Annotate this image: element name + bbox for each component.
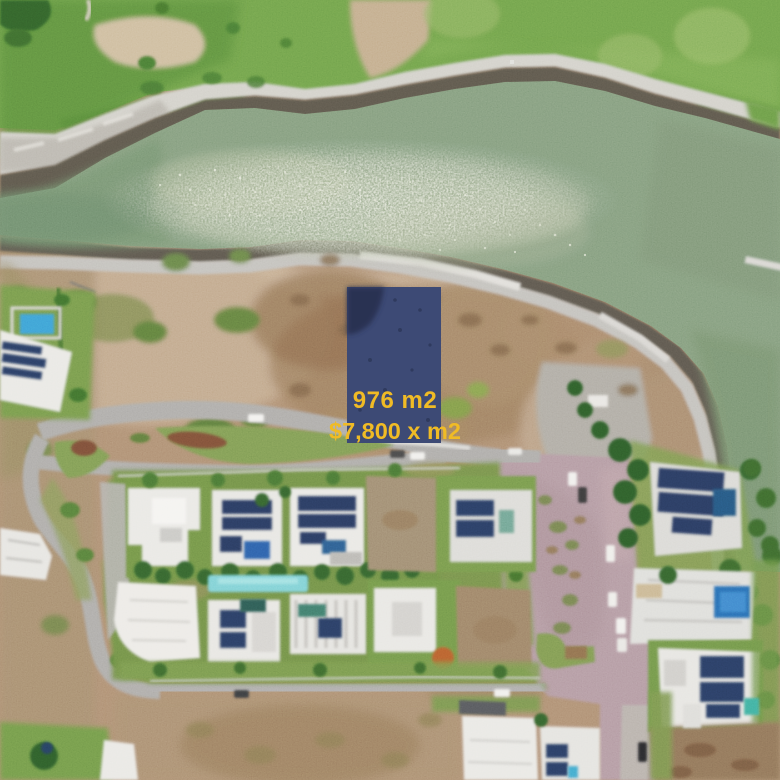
svg-text:976 m2: 976 m2 (353, 387, 437, 414)
svg-text:$7,800 x m2: $7,800 x m2 (329, 418, 461, 444)
